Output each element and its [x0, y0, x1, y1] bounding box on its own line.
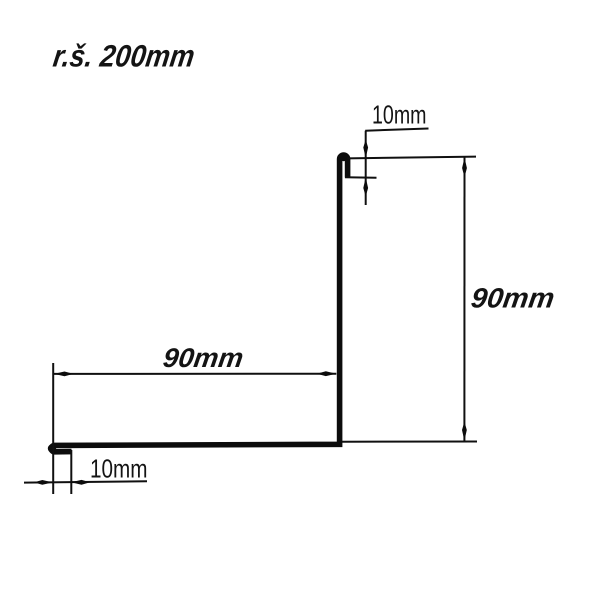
- svg-text:90mm: 90mm: [469, 283, 556, 314]
- svg-text:90mm: 90mm: [161, 342, 245, 373]
- svg-text:10mm: 10mm: [90, 454, 148, 484]
- svg-text:r.š. 200mm: r.š. 200mm: [51, 39, 197, 74]
- svg-text:10mm: 10mm: [372, 100, 427, 130]
